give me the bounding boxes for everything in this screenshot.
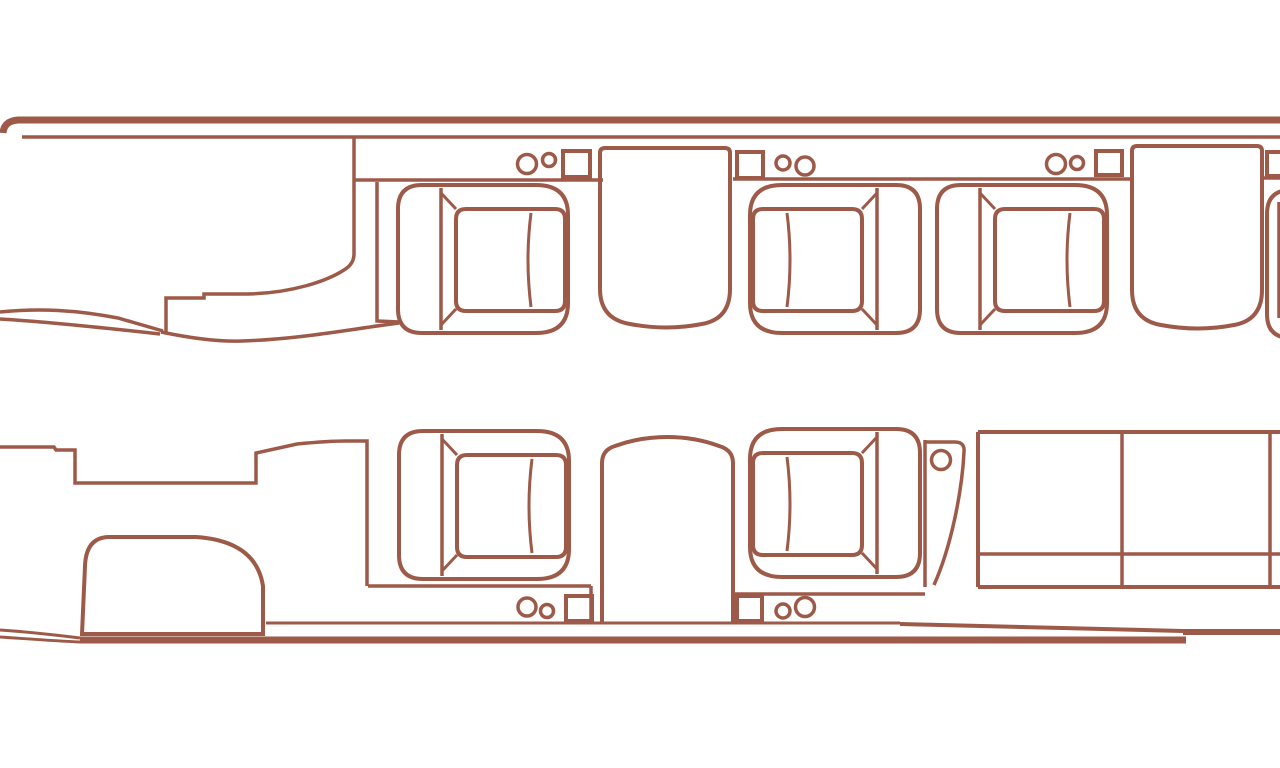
panel-square [737,152,763,178]
cabin-floorplan-diagram [0,0,1280,768]
club-seat-3 [937,185,1107,333]
panel-square [737,596,762,621]
cup-holder-circle [518,598,536,616]
side-table-2 [1132,146,1262,329]
side-table-3 [602,437,733,624]
cup-holder-circle [1071,157,1084,170]
club-seat-2 [750,185,920,333]
cockpit-partition-line [166,137,354,332]
cup-holder-circle [1047,155,1066,174]
nose-sill-line [161,323,399,341]
panel-square [563,151,590,177]
cup-holder-circle [796,157,814,175]
cup-holder-circle [776,604,790,618]
club-seat-4 [399,431,569,579]
cup-holder-circle [776,156,790,170]
hull-top-line [3,120,1280,133]
cup-holder-circle [932,451,951,470]
forward-wall-segment [377,182,399,322]
divan [978,432,1280,587]
cup-holder-circle [543,154,556,167]
club-seat-5 [750,429,920,577]
floorplan-canvas: Aircraft cabin floor plan (top view) [0,0,1280,768]
panel-square [1096,151,1122,175]
club-seat-partial-right-edge [1267,190,1280,338]
panel-square [566,596,592,621]
side-table-1 [600,148,730,328]
console-ledge-bottom-left [368,586,591,622]
entry-door-recess [0,441,367,586]
curved-partition [925,440,964,587]
cup-holder-circle [796,598,815,617]
panel-square-partial [1267,152,1280,176]
club-seat-1 [398,185,568,333]
cup-holder-circle [541,605,554,618]
nose-taper-lower-line [0,319,160,334]
cup-holder-circle [518,155,537,174]
forward-cabinet [82,537,263,634]
fuselage-outline [0,120,1280,642]
